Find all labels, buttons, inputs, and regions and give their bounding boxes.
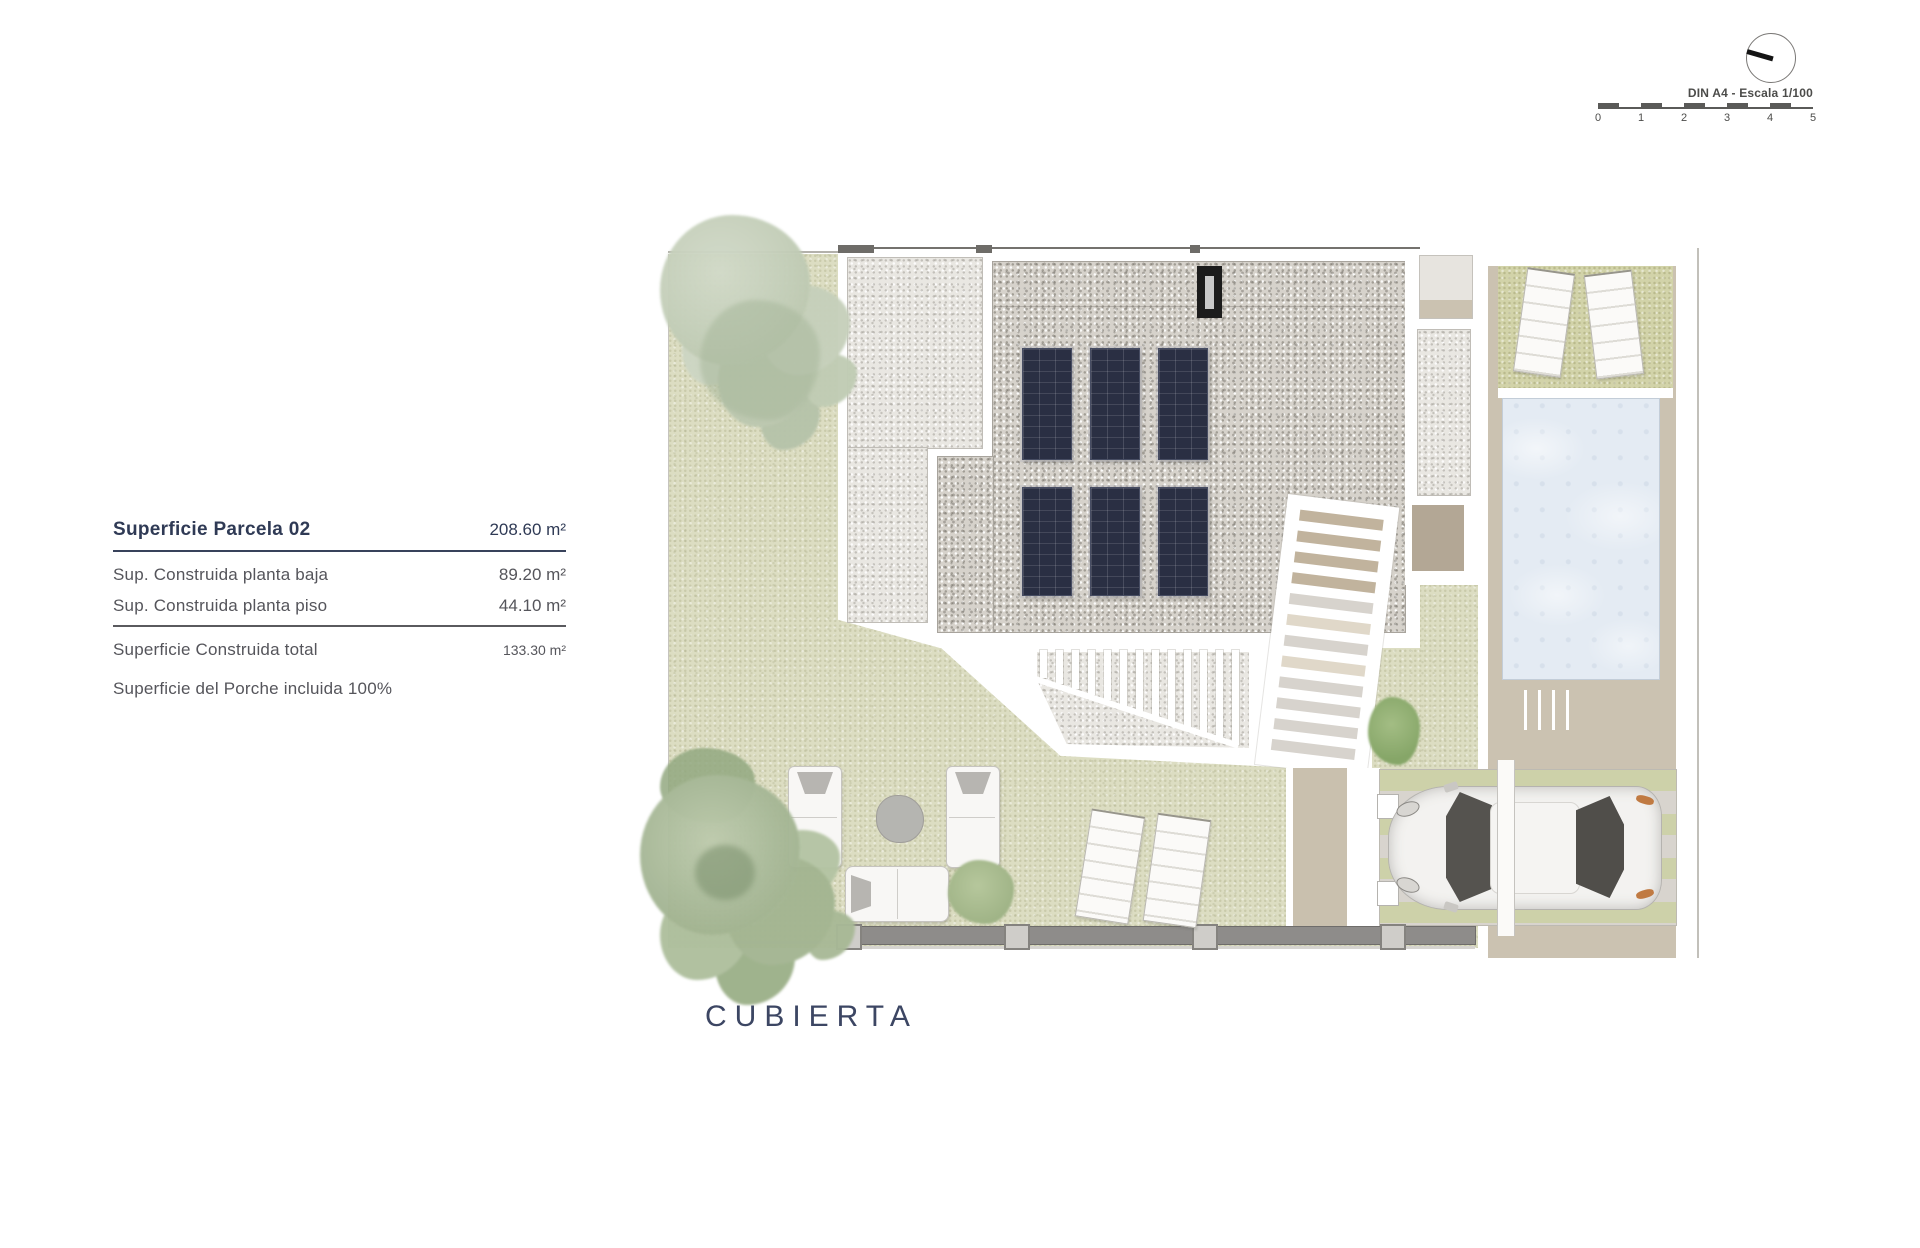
wall-post-1: [836, 924, 862, 950]
scale-tick-1: 1: [1631, 112, 1651, 124]
sofa: [845, 866, 949, 922]
roof-gravel-light-lower: [848, 448, 927, 622]
louver-gap: [1281, 656, 1366, 677]
car: [1388, 786, 1660, 908]
scale-bar-baseline: [1598, 107, 1813, 109]
pergola-slat: [1200, 650, 1207, 734]
solar-panel-3: [1158, 348, 1208, 460]
scale-tick-5: 5: [1803, 112, 1823, 124]
roof-gravel-dark-extension: [938, 457, 993, 632]
scale-tick-2: 2: [1674, 112, 1694, 124]
scale-bar: 0 1 2 3 4 5: [1598, 103, 1813, 125]
wall-post-2: [1004, 924, 1030, 950]
scale-tick-0: 0: [1588, 112, 1608, 124]
solar-panel-6: [1158, 487, 1208, 596]
solar-panel-2: [1090, 348, 1140, 460]
sofa-backrest: [851, 875, 871, 913]
pool-step-1: [1524, 690, 1527, 730]
chimney-flue: [1205, 276, 1214, 309]
legend-row-planta-piso: Sup. Construida planta piso 44.10 m²: [113, 596, 566, 616]
louver-gap: [1279, 676, 1364, 697]
surface-legend: Superficie Parcela 02 208.60 m² Sup. Con…: [113, 519, 566, 699]
pergola-slat: [1104, 650, 1111, 700]
parcel-area-value: 208.60 m²: [489, 520, 566, 540]
pergola-slat: [1168, 650, 1175, 723]
pergola-slat: [1072, 650, 1079, 689]
bottom-right-curb: [1544, 940, 1676, 956]
carport-left-apron: [1357, 768, 1380, 927]
bush-near-sofa: [948, 860, 1014, 924]
sofa-seat-line: [897, 869, 898, 919]
pool-step-4: [1566, 690, 1569, 730]
bush-at-pergola: [1368, 697, 1420, 765]
roof-top-wall-post-a: [838, 245, 874, 253]
legend-title-row: Superficie Parcela 02 208.60 m²: [113, 519, 566, 541]
armchair-backrest: [797, 772, 833, 794]
car-rear-window: [1576, 796, 1624, 898]
legend-row-planta-baja: Sup. Construida planta baja 89.20 m²: [113, 565, 566, 585]
tree-bottom-left-core: [695, 845, 755, 900]
solar-panel-1: [1022, 348, 1072, 460]
pergola-slat: [1136, 650, 1143, 712]
lawn-bottom-boundary-line: [672, 941, 848, 944]
roof-side-room-ledge: [1420, 300, 1472, 318]
scale-bar-label: DIN A4 - Escala 1/100: [1600, 86, 1813, 100]
louver-gap: [1296, 530, 1381, 551]
louver-gap: [1299, 510, 1384, 531]
pergola-slat: [1120, 650, 1127, 706]
garden-pool-divider: [1498, 388, 1673, 398]
coffee-table: [876, 795, 924, 843]
roof-top-wall-line: [838, 247, 1420, 249]
legend-note: Superficie del Porche incluida 100%: [113, 679, 566, 699]
legend-row-total: Superficie Construida total 133.30 m²: [113, 640, 566, 660]
roof-top-wall-post-b: [976, 245, 992, 253]
legend-divider-top: [113, 550, 566, 552]
scale-tick-3: 3: [1717, 112, 1737, 124]
car-windshield: [1446, 792, 1492, 902]
armchair-right: [946, 766, 1000, 868]
pergola-slat: [1216, 650, 1223, 739]
roof-top-wall-post-c: [1190, 245, 1200, 253]
legend-divider-total: [113, 625, 566, 627]
armchair-backrest: [955, 772, 991, 794]
garden-path: [1293, 768, 1347, 927]
carport-beam: [1497, 760, 1515, 936]
pergola-slat: [1152, 650, 1159, 717]
louver-gap: [1286, 614, 1371, 635]
pool-step-3: [1552, 690, 1555, 730]
louver-gap: [1276, 697, 1361, 718]
roof-side-terrace: [1412, 505, 1464, 571]
louver-gap: [1271, 739, 1356, 760]
pergola-slat: [1088, 650, 1095, 695]
pergola-slat: [1040, 650, 1047, 678]
pool-step-2: [1538, 690, 1541, 730]
pergola-slat: [1184, 650, 1191, 728]
parcel-title: Superficie Parcela 02: [113, 519, 310, 541]
scale-tick-4: 4: [1760, 112, 1780, 124]
louver-gap: [1273, 718, 1358, 739]
louver-gap: [1294, 551, 1379, 572]
louver-gap: [1284, 635, 1369, 656]
deck-right-border: [1676, 248, 1696, 958]
armchair-seat-line: [949, 817, 995, 818]
roof-gravel-light-upper: [848, 258, 982, 448]
pergola-slat: [1056, 650, 1063, 684]
solar-panel-4: [1022, 487, 1072, 596]
wall-post-4: [1380, 924, 1406, 950]
path-right-border: [1347, 768, 1357, 927]
deck-top-border: [1488, 248, 1676, 266]
louver-gap: [1289, 593, 1374, 614]
solar-panel-5: [1090, 487, 1140, 596]
parcel-right-edge-line: [1697, 248, 1699, 958]
roof-side-gravel: [1418, 330, 1470, 495]
armchair-seat-line: [791, 817, 837, 818]
swimming-pool: [1502, 398, 1660, 680]
louver-gap: [1291, 572, 1376, 593]
pergola-slat: [1232, 650, 1239, 745]
path-left-border: [1286, 768, 1293, 927]
plan-title: CUBIERTA: [705, 1000, 918, 1034]
